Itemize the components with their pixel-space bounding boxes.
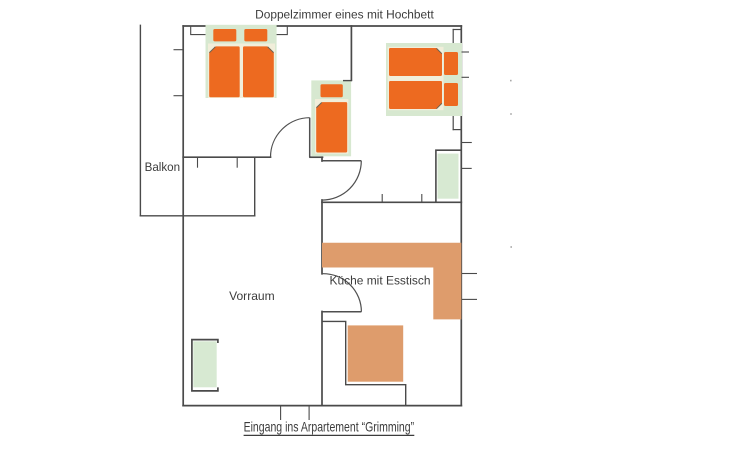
svg-text:Küche mit Esstisch: Küche mit Esstisch (330, 273, 431, 287)
svg-text:Vorraum: Vorraum (229, 289, 275, 303)
svg-text:Balkon: Balkon (145, 160, 181, 174)
svg-text:Doppelzimmer eines mit Hochbet: Doppelzimmer eines mit Hochbett (255, 8, 434, 22)
svg-text:Eingang ins Arpartement “Grimm: Eingang ins Arpartement “Grimming” (244, 419, 415, 434)
